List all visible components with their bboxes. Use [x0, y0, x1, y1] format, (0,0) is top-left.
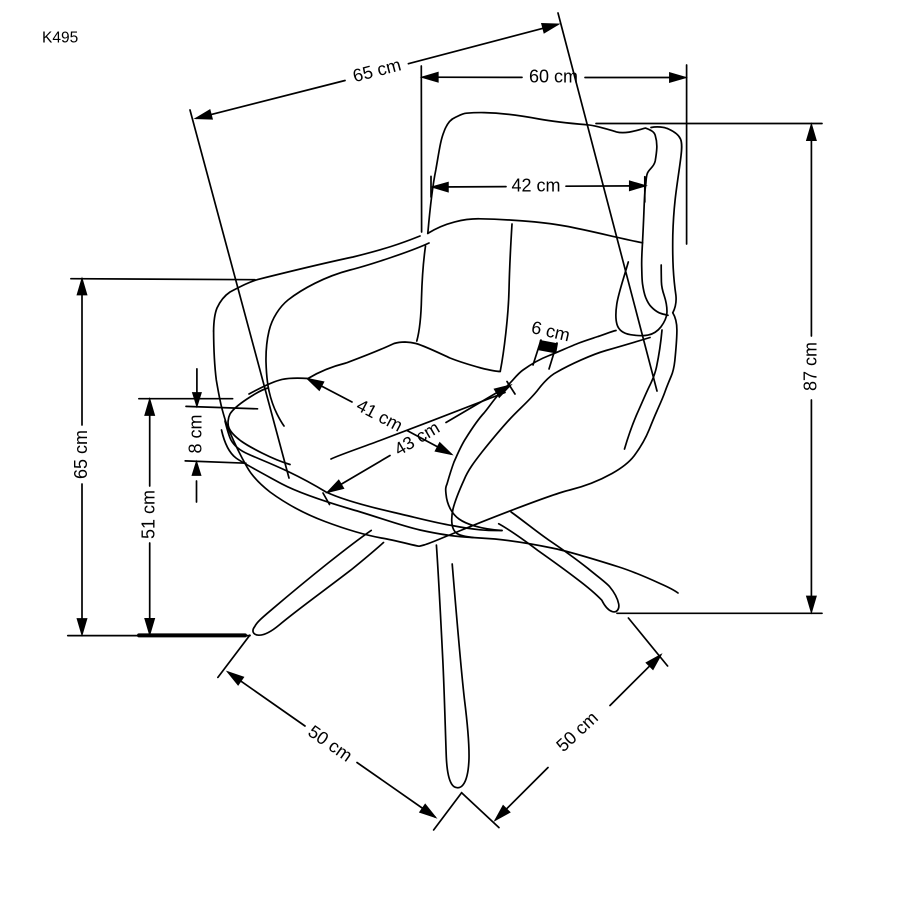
- svg-text:65 cm: 65 cm: [71, 430, 91, 479]
- svg-text:87 cm: 87 cm: [800, 342, 820, 391]
- svg-text:K495: K495: [42, 30, 78, 47]
- svg-text:51 cm: 51 cm: [139, 490, 159, 539]
- svg-text:42 cm: 42 cm: [511, 175, 560, 195]
- svg-text:8 cm: 8 cm: [185, 414, 205, 453]
- svg-text:60 cm: 60 cm: [529, 66, 578, 86]
